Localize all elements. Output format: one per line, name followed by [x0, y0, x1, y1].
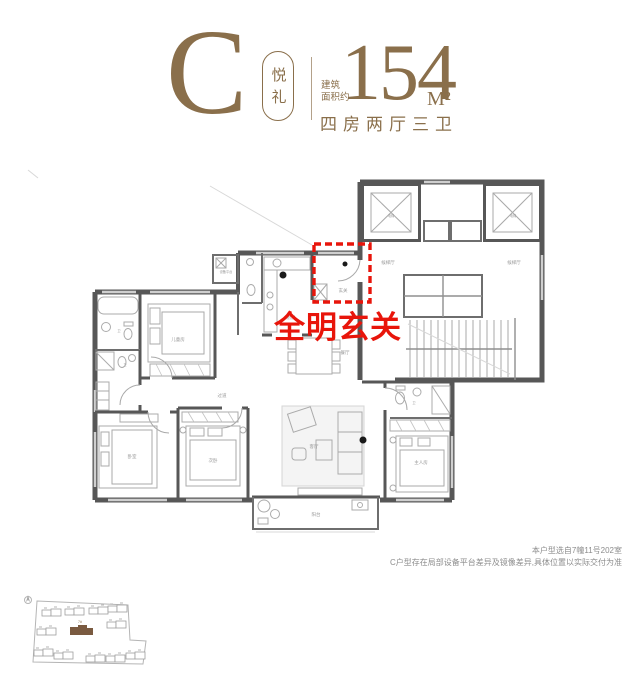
room-label: 玄关	[339, 287, 348, 294]
corner-tick	[28, 170, 38, 178]
toilet-icon	[247, 259, 256, 296]
site-plan: 7#	[25, 595, 147, 664]
room-label: 设备平台	[220, 269, 233, 274]
bed-icon	[180, 412, 246, 486]
building-footprint	[42, 607, 61, 616]
stairs-icon	[406, 318, 515, 380]
note-disclaimer: C户型存在局部设备平台差异及镜像差异,具体位置以实际交付为准	[390, 557, 622, 568]
highlighted-building-label: 7#	[78, 620, 82, 624]
sofa-icon	[282, 406, 367, 495]
room-label: 卫	[412, 401, 416, 405]
bed-icon	[390, 420, 450, 492]
toilet-icon	[96, 352, 136, 410]
entry-door-arc	[338, 260, 360, 281]
building-footprint	[126, 650, 145, 659]
room-label: 卫	[117, 329, 121, 333]
room-label: 电梯	[510, 213, 517, 218]
highlight-callout: 全明玄关	[274, 302, 402, 347]
room-label: 过道	[218, 392, 227, 399]
note-source: 本户型选自7幢11号202室	[532, 545, 622, 556]
utility-shafts	[404, 275, 482, 317]
room-label: 客厅	[310, 443, 319, 450]
room-label: 主人房	[414, 459, 428, 466]
page: C 悦礼 建筑 面积约 154 M² 四房两厅三卫	[0, 0, 640, 677]
building-footprint	[107, 619, 126, 628]
room-label: 候梯厅	[381, 259, 395, 266]
highlighted-building: 7#	[70, 620, 93, 635]
bathtub-icon	[98, 297, 138, 340]
shaft-box	[424, 221, 449, 241]
room-label: 餐厅	[341, 349, 350, 356]
room-label: 儿童房	[171, 336, 185, 343]
building-footprint	[65, 606, 84, 615]
plant-icon	[258, 500, 280, 524]
room-label: 阳台	[312, 511, 321, 518]
room-label: 卧室	[128, 453, 137, 460]
shower-icon	[396, 386, 451, 414]
compass-icon	[25, 595, 32, 604]
room-label: 次卧	[209, 457, 218, 464]
room-label: 电梯	[388, 213, 395, 218]
elevator-icon	[363, 185, 420, 241]
building-footprint	[34, 647, 53, 656]
room-label: 候梯厅	[507, 259, 521, 266]
bed-icon	[99, 414, 158, 488]
building-footprint	[106, 653, 125, 662]
building-footprint	[89, 605, 108, 614]
building-footprint	[86, 653, 105, 662]
equipment-platform	[213, 255, 238, 283]
leader-line	[210, 186, 312, 245]
building-footprint	[37, 626, 56, 635]
elevator-icon	[485, 185, 541, 241]
room-label: 卫	[123, 363, 127, 367]
building-footprint	[54, 650, 73, 659]
shaft-box	[451, 221, 481, 241]
